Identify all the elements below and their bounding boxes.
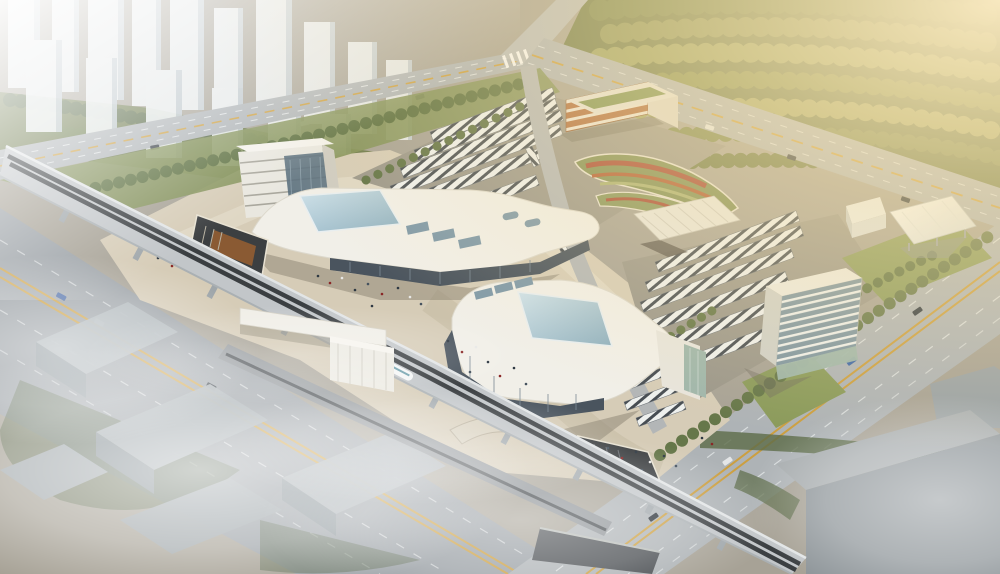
aerial-render: [0, 0, 1000, 574]
rendering-canvas: [0, 0, 1000, 574]
sun-glow: [0, 0, 1000, 574]
